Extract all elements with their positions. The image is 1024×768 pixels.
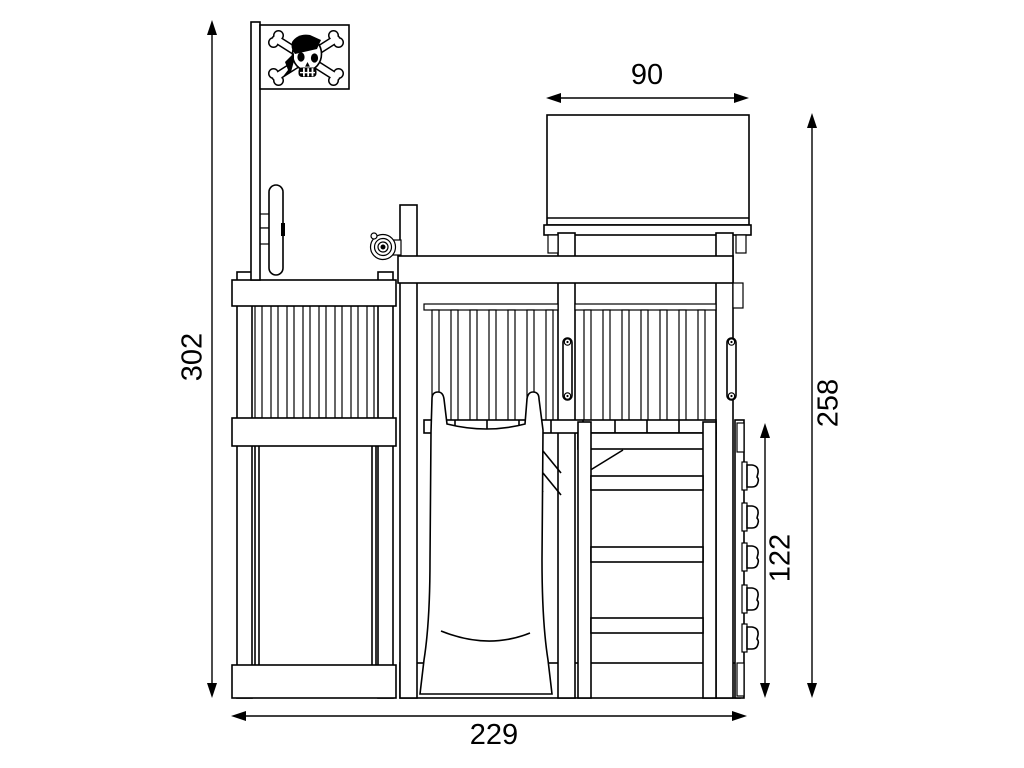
climbing-hold bbox=[742, 585, 758, 613]
ladder-rung bbox=[591, 547, 703, 562]
ladder-stringer-right bbox=[703, 422, 716, 698]
base-rail-left bbox=[232, 665, 396, 698]
ladder-rung bbox=[591, 618, 703, 633]
grab-handle-left bbox=[563, 338, 572, 400]
climbing-hold bbox=[742, 624, 758, 652]
ladder-rung bbox=[591, 476, 703, 490]
dimension-label-total-height: 302 bbox=[177, 333, 209, 381]
left-mid-rail bbox=[232, 418, 396, 446]
roof-box bbox=[544, 115, 751, 235]
dimension-label-total-width: 229 bbox=[470, 719, 518, 751]
climbing-hold bbox=[742, 503, 758, 531]
dimension-label-rear-height: 258 bbox=[813, 379, 845, 427]
left-tower-post-right bbox=[378, 272, 393, 698]
left-tower-post-left bbox=[237, 272, 252, 698]
technical-drawing-page: 302 90 258 122 229 bbox=[0, 0, 1024, 768]
rail-end-bracket bbox=[733, 283, 743, 308]
climbing-hold bbox=[742, 462, 758, 490]
left-top-rail bbox=[232, 280, 396, 306]
flag-pole bbox=[251, 22, 260, 280]
dimension-label-roof-width: 90 bbox=[631, 59, 663, 91]
ladder-stringer-left bbox=[578, 422, 591, 698]
dimension-label-climbing-wall-height: 122 bbox=[765, 534, 797, 582]
climbing-hold bbox=[742, 543, 758, 571]
grab-handle-right bbox=[727, 338, 736, 400]
slide bbox=[420, 392, 552, 694]
play-tower-elevation-drawing: 302 90 258 122 229 bbox=[0, 0, 1024, 768]
